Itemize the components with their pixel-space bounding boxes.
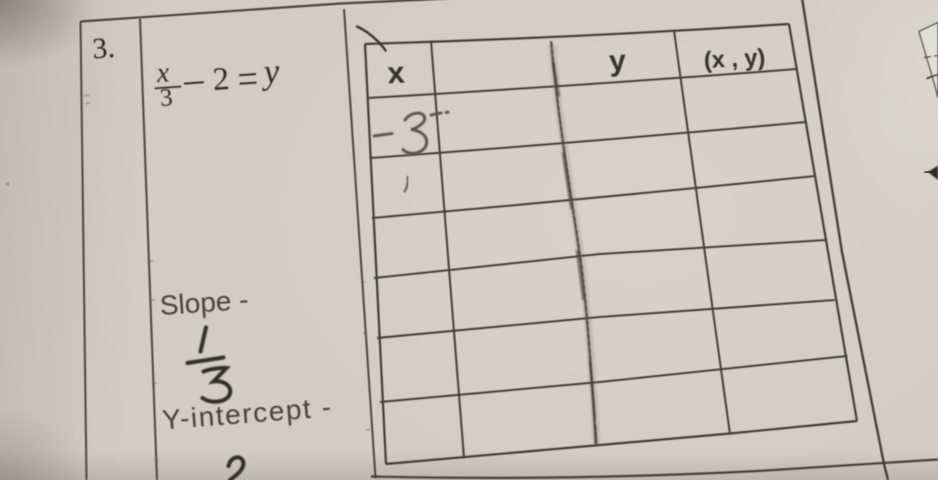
svg-text:3.: 3. bbox=[91, 31, 116, 65]
svg-text:x: x bbox=[386, 55, 406, 91]
svg-text:2: 2 bbox=[212, 61, 231, 98]
svg-text:y: y bbox=[259, 51, 281, 91]
svg-text:Slope -: Slope - bbox=[159, 284, 250, 321]
svg-text:(x , y): (x , y) bbox=[703, 44, 766, 73]
svg-text:3: 3 bbox=[159, 82, 174, 112]
svg-text:y: y bbox=[608, 44, 627, 78]
svg-text:Y-intercept -: Y-intercept - bbox=[161, 391, 334, 435]
